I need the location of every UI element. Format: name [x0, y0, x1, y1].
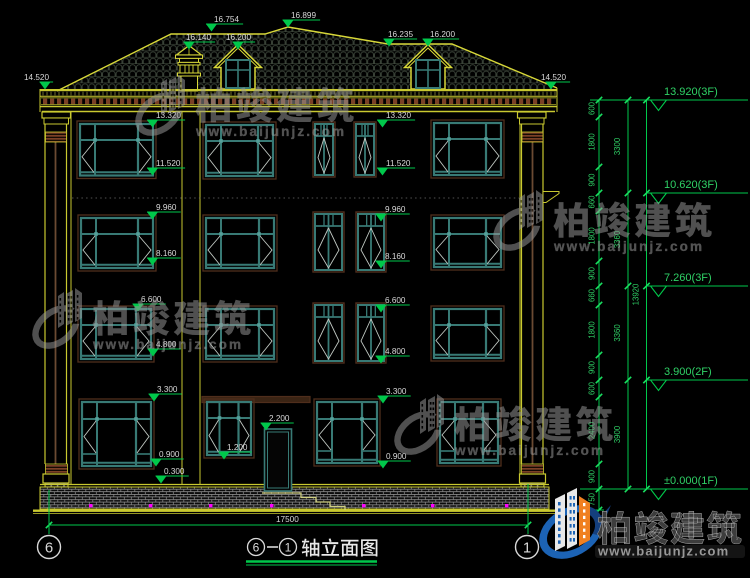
- svg-text:14.520: 14.520: [24, 73, 49, 82]
- svg-text:10.620(3F): 10.620(3F): [664, 179, 718, 191]
- svg-text:16.235: 16.235: [388, 30, 413, 39]
- svg-text:600: 600: [588, 381, 597, 395]
- svg-text:660: 660: [588, 195, 597, 209]
- svg-text:9.960: 9.960: [156, 203, 177, 212]
- svg-text:16.200: 16.200: [430, 30, 455, 39]
- svg-text:13920: 13920: [632, 283, 641, 305]
- svg-text:900: 900: [588, 266, 597, 280]
- svg-text:16.754: 16.754: [214, 15, 239, 24]
- svg-text:17500: 17500: [276, 515, 299, 524]
- svg-text:11.520: 11.520: [156, 159, 181, 168]
- svg-text:3300: 3300: [613, 137, 622, 155]
- svg-text:600: 600: [588, 101, 597, 115]
- svg-text:1: 1: [523, 540, 531, 557]
- svg-text:3900: 3900: [613, 425, 622, 443]
- svg-text:0.900: 0.900: [159, 450, 180, 459]
- svg-text:www.baijunjz.com: www.baijunjz.com: [597, 544, 729, 559]
- svg-text:16.899: 16.899: [291, 11, 316, 20]
- svg-text:9.960: 9.960: [385, 205, 406, 214]
- svg-text:1.200: 1.200: [227, 443, 248, 452]
- svg-text:6: 6: [45, 540, 53, 557]
- svg-text:3.900(2F): 3.900(2F): [664, 366, 712, 378]
- svg-text:13.320: 13.320: [386, 111, 411, 120]
- svg-text:3.300: 3.300: [157, 385, 178, 394]
- svg-text:900: 900: [588, 469, 597, 483]
- svg-text:16.200: 16.200: [226, 33, 251, 42]
- svg-text:1: 1: [285, 541, 292, 555]
- svg-text:0.300: 0.300: [164, 467, 185, 476]
- svg-text:8.160: 8.160: [385, 252, 406, 261]
- svg-text:4.800: 4.800: [385, 347, 406, 356]
- svg-text:11.520: 11.520: [386, 159, 411, 168]
- svg-text:6: 6: [253, 541, 260, 555]
- svg-text:8.160: 8.160: [156, 249, 177, 258]
- svg-text:6.600: 6.600: [141, 295, 162, 304]
- svg-text:6.600: 6.600: [385, 296, 406, 305]
- svg-text:3360: 3360: [613, 324, 622, 342]
- svg-text:900: 900: [588, 173, 597, 187]
- svg-text:1800: 1800: [588, 133, 597, 151]
- svg-text:14.520: 14.520: [541, 73, 566, 82]
- svg-text:13.920(3F): 13.920(3F): [664, 86, 718, 98]
- svg-text:7.260(3F): 7.260(3F): [664, 272, 712, 284]
- svg-text:3.300: 3.300: [386, 387, 407, 396]
- svg-text:2.200: 2.200: [269, 414, 290, 423]
- svg-text:1800: 1800: [588, 321, 597, 339]
- svg-text:±0.000(1F): ±0.000(1F): [664, 475, 718, 487]
- svg-text:660: 660: [588, 288, 597, 302]
- svg-text:900: 900: [588, 360, 597, 374]
- svg-text:16.140: 16.140: [186, 33, 211, 42]
